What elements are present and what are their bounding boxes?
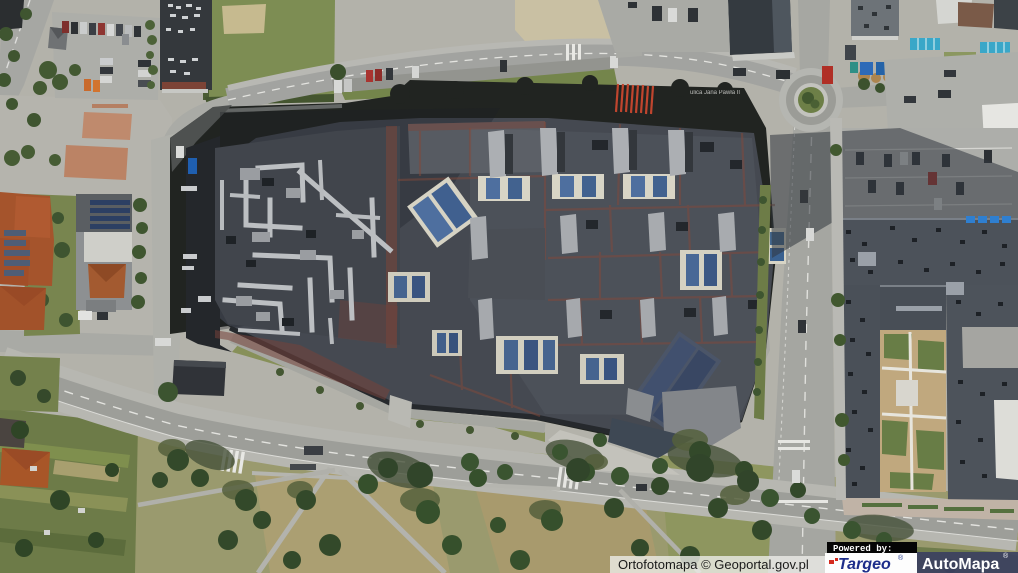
svg-text:Powered by:: Powered by: [833,544,892,554]
svg-text:®: ® [1003,552,1009,560]
svg-text:Targeo: Targeo [838,556,891,573]
svg-text:AutoMapa: AutoMapa [922,556,999,573]
svg-text:Ortofotomapa © Geoportal.gov.p: Ortofotomapa © Geoportal.gov.pl [618,557,809,572]
svg-text:ulica Jana Pawła II: ulica Jana Pawła II [690,90,740,96]
svg-text:®: ® [898,554,904,562]
